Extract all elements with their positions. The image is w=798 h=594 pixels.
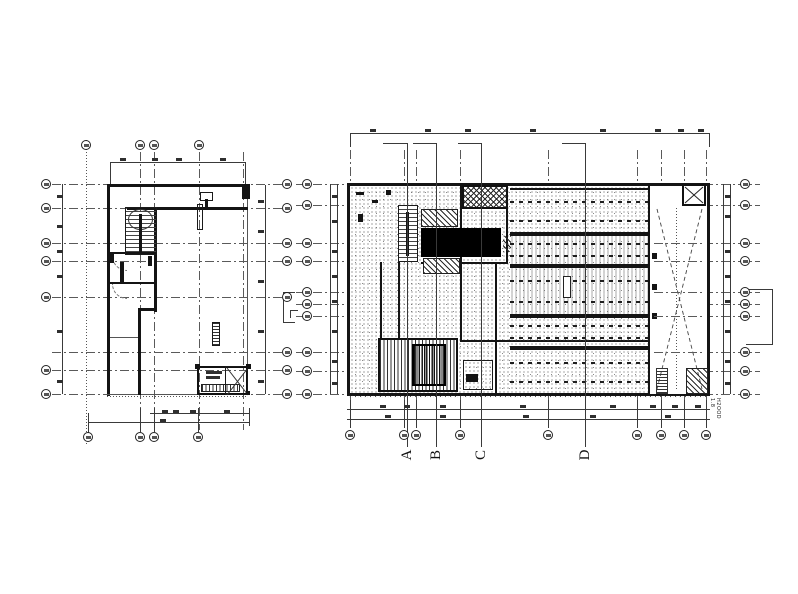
dim-text [332,220,338,223]
dim-text [465,129,471,132]
dimension-line [62,184,63,394]
dimension-extension [416,400,417,428]
dim-text [258,330,264,333]
circle-grid-bubble-icon [302,347,312,357]
circle-grid-bubble-icon [282,389,292,399]
circle-grid-bubble-icon [740,299,750,309]
dim-text [190,410,196,413]
dim-text [57,380,63,383]
dimension-line [88,422,250,423]
circle-grid-bubble-icon [740,366,750,376]
circle-grid-bubble-icon [149,432,159,442]
dimension-line [110,162,246,163]
dim-text [332,250,338,253]
dimension-line [347,409,710,410]
dimension-line [154,408,155,432]
circle-grid-bubble-icon [302,179,312,189]
dim-text [725,300,731,303]
dimension-line [330,184,331,394]
dim-text [152,158,158,161]
dim-text [725,382,731,385]
dimension-extension [661,400,662,428]
dim-text [440,405,446,408]
circle-grid-bubble-icon [282,347,292,357]
dim-text [332,275,338,278]
circle-grid-bubble-icon [282,365,292,375]
circle-grid-bubble-icon [41,292,51,302]
dimension-line [709,133,710,147]
dimension-line [746,344,772,345]
dim-text [725,250,731,253]
dimension-line [140,408,141,432]
dimension-line [350,133,710,134]
dim-text [258,380,264,383]
circle-grid-bubble-icon [81,140,91,150]
circle-grid-bubble-icon [632,430,642,440]
circle-grid-bubble-icon [41,389,51,399]
circle-grid-bubble-icon [41,203,51,213]
dimension-line [347,419,710,420]
circle-grid-bubble-icon [282,238,292,248]
circle-grid-bubble-icon [679,430,689,440]
dim-text [224,410,230,413]
circle-grid-bubble-icon [740,287,750,297]
dimension-extension [684,400,685,428]
dim-text [332,330,338,333]
dim-text [57,225,63,228]
dim-text [530,129,536,132]
dim-text [678,129,684,132]
dim-text [695,405,701,408]
dim-text [258,230,264,233]
dimension-line [290,310,291,318]
circle-grid-bubble-icon [282,179,292,189]
dimension-line [198,408,199,432]
dim-text [725,360,731,363]
dim-text [258,280,264,283]
dim-text [650,405,656,408]
dim-text [176,158,182,161]
circle-grid-bubble-icon [41,238,51,248]
dim-text [220,158,226,161]
dimension-extension [460,400,461,428]
dim-text [610,405,616,408]
circle-grid-bubble-icon [193,432,203,442]
dim-text [440,415,446,418]
dim-text [258,200,264,203]
circle-grid-bubble-icon [740,311,750,321]
circle-grid-bubble-icon [41,179,51,189]
dim-text [672,405,678,408]
dim-text [380,405,386,408]
dimension-extension [706,400,707,428]
dimension-line [245,162,246,184]
circle-grid-bubble-icon [740,389,750,399]
dim-text [425,129,431,132]
circle-grid-bubble-icon [543,430,553,440]
circle-grid-bubble-icon [740,179,750,189]
circle-grid-bubble-icon [455,430,465,440]
circle-grid-bubble-icon [83,432,93,442]
dim-text [665,415,671,418]
circle-grid-bubble-icon [302,256,312,266]
drawing-sheet: A B C D H2OOD 1.8 [0,0,798,594]
dim-text [385,415,391,418]
circle-grid-bubble-icon [399,430,409,440]
dimension-line [746,289,772,290]
circle-grid-bubble-icon [345,430,355,440]
dim-text [655,129,661,132]
circle-grid-bubble-icon [740,200,750,210]
dim-text [57,330,63,333]
circle-grid-bubble-icon [302,287,312,297]
dimension-line [723,184,724,394]
dim-text [370,129,376,132]
dimension-line [110,162,111,184]
dimension-line [249,408,250,426]
dim-text [725,215,731,218]
circle-grid-bubble-icon [302,311,312,321]
annotation-layer [0,0,798,594]
dim-text [332,360,338,363]
dim-text [332,382,338,385]
dim-text [173,410,179,413]
circle-grid-bubble-icon [135,140,145,150]
dimension-line [283,322,295,323]
dim-text [590,415,596,418]
circle-grid-bubble-icon [302,238,312,248]
dimension-extension [637,400,638,428]
circle-grid-bubble-icon [701,430,711,440]
dim-text [332,300,338,303]
circle-grid-bubble-icon [41,256,51,266]
dimension-line [772,289,773,345]
dimension-line [350,133,351,147]
dim-text [725,330,731,333]
circle-grid-bubble-icon [282,292,292,302]
dim-text [57,250,63,253]
dim-text [523,415,529,418]
circle-grid-bubble-icon [740,256,750,266]
circle-grid-bubble-icon [302,389,312,399]
circle-grid-bubble-icon [740,347,750,357]
dimension-extension [548,400,549,428]
dim-text [57,195,63,198]
circle-grid-bubble-icon [282,256,292,266]
circle-grid-bubble-icon [149,140,159,150]
circle-grid-bubble-icon [41,365,51,375]
dim-text [725,275,731,278]
circle-grid-bubble-icon [302,366,312,376]
dim-text [332,195,338,198]
circle-grid-bubble-icon [135,432,145,442]
dim-text [160,419,166,422]
dimension-line [290,310,298,311]
dimension-line [265,185,266,394]
dim-text [520,405,526,408]
circle-grid-bubble-icon [740,238,750,248]
circle-grid-bubble-icon [282,203,292,213]
circle-grid-bubble-icon [656,430,666,440]
dim-text [57,275,63,278]
circle-grid-bubble-icon [194,140,204,150]
circle-grid-bubble-icon [411,430,421,440]
circle-grid-bubble-icon [302,299,312,309]
dim-text [698,129,704,132]
circle-grid-bubble-icon [302,200,312,210]
dim-text [120,158,126,161]
dim-text [600,129,606,132]
dim-text [404,405,410,408]
dim-text [725,195,731,198]
dimension-extension [350,400,351,428]
dim-text [162,410,168,413]
dimension-line [150,413,250,414]
